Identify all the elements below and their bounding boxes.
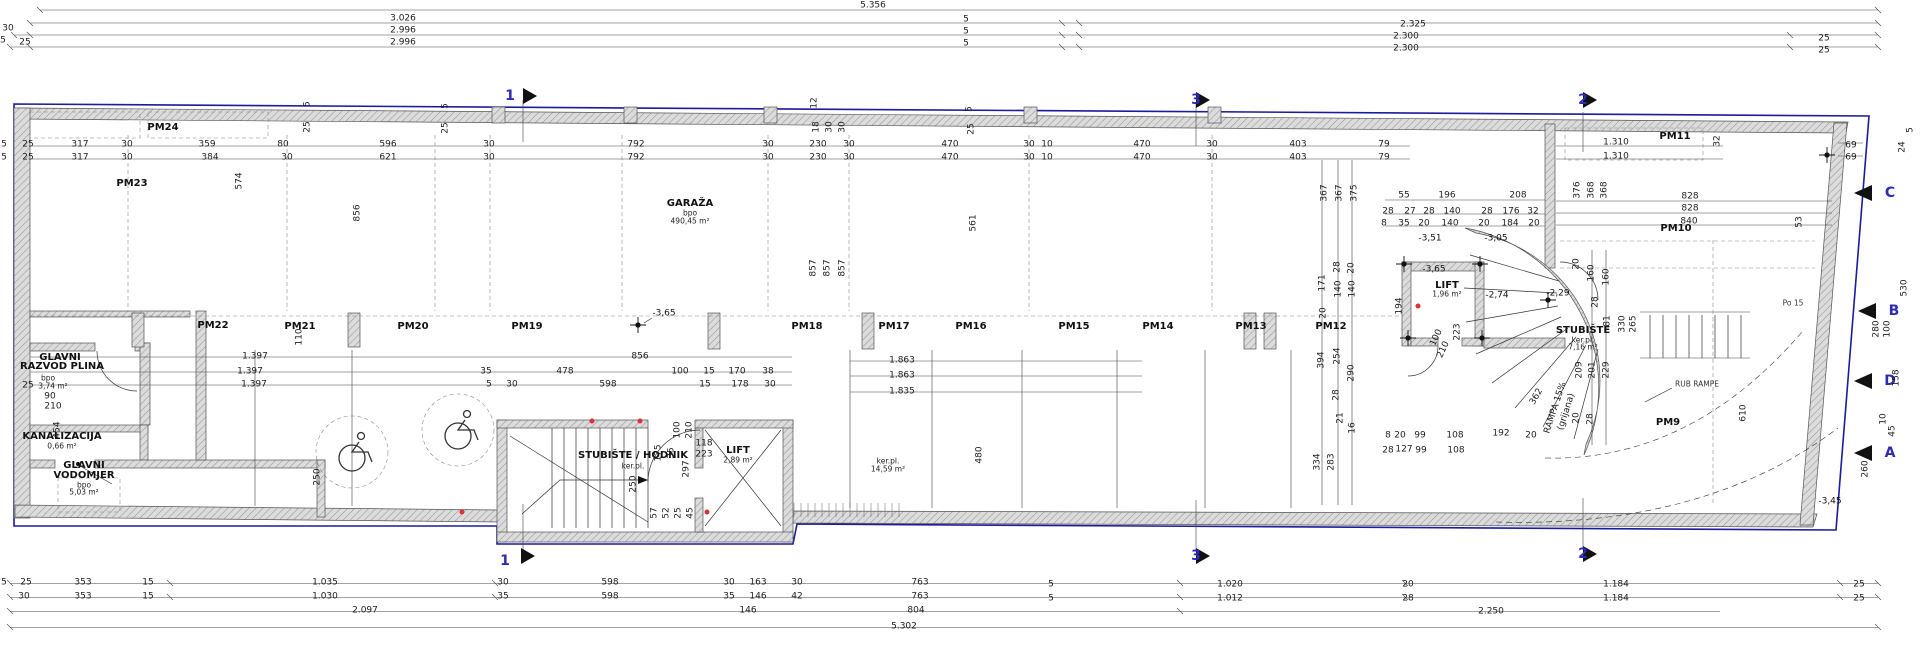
dim-label: 178 xyxy=(731,381,748,390)
dim-label: 20 xyxy=(1528,220,1539,229)
dim-label: 5 xyxy=(966,106,975,112)
section-marker-2-top: 2 xyxy=(1578,93,1588,107)
level-label: -3,65 xyxy=(1422,266,1445,275)
dim-label: 42 xyxy=(791,593,802,602)
dim-label: 163 xyxy=(749,579,766,588)
level-label: -2,74 xyxy=(1485,292,1508,301)
dim-label: 28 xyxy=(1334,261,1343,272)
dim-label: 297 xyxy=(683,460,692,477)
dim-label: 25 xyxy=(20,579,31,588)
dim-label: 30 xyxy=(121,141,132,150)
parking-label-pm10: PM10 xyxy=(1660,224,1691,234)
dim-label: 45 xyxy=(1889,425,1898,436)
dim-label: 25 xyxy=(22,154,33,163)
dim-label: 184 xyxy=(1501,220,1518,229)
dim-label: 3.026 xyxy=(390,15,416,24)
room-area-label: 3,74 m² xyxy=(38,382,67,390)
dim-label: 5.302 xyxy=(891,623,917,632)
dim-label: 10 xyxy=(1041,141,1052,150)
dim-label: 290 xyxy=(1348,364,1357,381)
dim-label: 99 xyxy=(1415,447,1426,456)
parking-label-pm12: PM12 xyxy=(1315,322,1346,332)
dim-label: 2.250 xyxy=(1478,608,1504,617)
dim-label: 8 xyxy=(1381,220,1387,229)
dim-label: 367 xyxy=(1336,184,1345,201)
parking-label-pm20: PM20 xyxy=(397,322,428,332)
dim-label: 828 xyxy=(1681,193,1698,202)
dim-label: 20 xyxy=(1525,432,1536,441)
dim-label: 1.310 xyxy=(1603,153,1629,162)
dim-label: 196 xyxy=(1438,192,1455,201)
dim-label: 5 xyxy=(963,16,969,25)
parking-label-pm9: PM9 xyxy=(1656,418,1680,428)
parking-label-pm23: PM23 xyxy=(116,179,147,189)
dim-label: 223 xyxy=(695,451,712,460)
dim-label: 30 xyxy=(723,579,734,588)
dim-label: 30 xyxy=(18,593,29,602)
dim-label: 194 xyxy=(1396,297,1405,314)
dim-label: 28 xyxy=(1481,208,1492,217)
dim-label: 1.397 xyxy=(241,381,267,390)
dim-label: 25 xyxy=(1853,595,1864,604)
floor-plan-page: 5.3563.02652.325302.99652.300255252.9965… xyxy=(0,0,1920,647)
dim-label: 480 xyxy=(976,446,985,463)
dim-label: 201 xyxy=(1589,361,1598,378)
room-area-label: ker.pl. xyxy=(622,462,645,470)
dim-label: 230 xyxy=(809,154,826,163)
room-area-label: 2,89 m² xyxy=(723,456,752,464)
dim-label: 30 xyxy=(843,141,854,150)
dim-label: 30 xyxy=(1206,141,1217,150)
dim-label: 28 xyxy=(1587,413,1596,424)
dim-label: 1.397 xyxy=(237,368,263,377)
dim-label: 2.325 xyxy=(1400,21,1426,30)
dim-label: 230 xyxy=(809,141,826,150)
parking-label-pm14: PM14 xyxy=(1142,322,1173,332)
parking-label-pm11: PM11 xyxy=(1659,132,1690,142)
dim-label: 2.097 xyxy=(352,607,378,616)
dim-label: 5 xyxy=(1,579,7,588)
dim-label: 15 xyxy=(703,368,714,377)
dim-label: 2.996 xyxy=(390,39,416,48)
dim-label: 30 xyxy=(826,121,835,132)
level-label: -3,65 xyxy=(652,310,675,319)
dim-label: 25 xyxy=(22,382,33,391)
dim-label: 99 xyxy=(1414,432,1425,441)
dim-label: 5 xyxy=(1048,595,1054,604)
dim-label: 28 xyxy=(1423,208,1434,217)
dim-label: 403 xyxy=(1289,141,1306,150)
dim-label: 30 xyxy=(762,141,773,150)
parking-label-pm21: PM21 xyxy=(284,322,315,332)
dim-label: 160 xyxy=(1603,268,1612,285)
level-label: -2,29 xyxy=(1546,290,1569,299)
dim-label: 30 xyxy=(2,25,13,34)
dim-label: 170 xyxy=(728,368,745,377)
dim-label: 1.184 xyxy=(1603,595,1629,604)
dim-label: 90 xyxy=(44,393,55,402)
dim-label: 317 xyxy=(71,154,88,163)
dim-label: 209 xyxy=(1576,361,1585,378)
dim-label: 20 xyxy=(1394,432,1405,441)
dim-label: 30 xyxy=(843,154,854,163)
dim-label: 20 xyxy=(1320,307,1329,318)
dim-label: 25 xyxy=(22,141,33,150)
dim-label: 596 xyxy=(379,141,396,150)
parking-label-pm18: PM18 xyxy=(791,322,822,332)
dim-label: 210 xyxy=(44,403,61,412)
dim-label: 30 xyxy=(497,579,508,588)
dim-label: 25 xyxy=(968,123,977,134)
section-marker-1-bottom: 1 xyxy=(500,554,510,568)
parking-label-pm19: PM19 xyxy=(511,322,542,332)
dim-label: 160 xyxy=(1588,264,1597,281)
ramp-edge-label: RUB RAMPE xyxy=(1675,380,1719,388)
room-area-label: 0,66 m² xyxy=(47,442,76,450)
dim-label: 30 xyxy=(506,381,517,390)
parking-label-pm16: PM16 xyxy=(955,322,986,332)
dim-label: 229 xyxy=(1603,361,1612,378)
dim-label: 10 xyxy=(1041,154,1052,163)
dim-label: 610 xyxy=(1740,404,1749,421)
dim-label: 158 xyxy=(1893,369,1902,386)
dim-label: 353 xyxy=(74,579,91,588)
dim-label: 45 xyxy=(687,507,696,518)
dim-label: 394 xyxy=(1318,351,1327,368)
dim-label: 362 xyxy=(1529,387,1545,406)
room-label: RAZVOD PLINA xyxy=(20,362,104,372)
dim-label: 30 xyxy=(281,154,292,163)
dim-label: 15 xyxy=(142,593,153,602)
dim-label: 470 xyxy=(941,141,958,150)
dim-label: 5 xyxy=(1907,127,1916,133)
dim-label: 5 xyxy=(0,37,6,46)
dim-label: 857 xyxy=(824,259,833,276)
dim-label: 376 xyxy=(1574,181,1583,198)
dim-label: 5 xyxy=(486,381,492,390)
dim-label: 470 xyxy=(1133,154,1150,163)
dim-label: 5 xyxy=(304,101,313,107)
dim-label: 828 xyxy=(1681,205,1698,214)
dim-label: 2.300 xyxy=(1393,33,1419,42)
level-label: -3,45 xyxy=(1818,498,1841,507)
dim-label: 334 xyxy=(1314,453,1323,470)
dim-label: 330 xyxy=(1619,315,1628,332)
dim-label: 1.863 xyxy=(889,357,915,366)
dim-label: 35 xyxy=(480,368,491,377)
dim-label: 5 xyxy=(1,154,7,163)
section-marker-3-bottom: 3 xyxy=(1191,549,1201,563)
section-marker-b: B xyxy=(1889,304,1900,318)
dim-label: 30 xyxy=(483,154,494,163)
dim-label: 5 xyxy=(1048,581,1054,590)
dim-label: 470 xyxy=(1133,141,1150,150)
parking-label-pm15: PM15 xyxy=(1058,322,1089,332)
dim-label: 2.300 xyxy=(1393,45,1419,54)
dim-label: 353 xyxy=(74,593,91,602)
dim-label: 1.012 xyxy=(1217,595,1243,604)
parking-label-pm17: PM17 xyxy=(878,322,909,332)
section-marker-2-bottom: 2 xyxy=(1578,547,1588,561)
dim-label: 375 xyxy=(1351,184,1360,201)
dim-label: 470 xyxy=(941,154,958,163)
dim-label: 598 xyxy=(601,593,618,602)
dim-label: 254 xyxy=(1334,347,1343,364)
dim-label: 38 xyxy=(762,368,773,377)
dim-label: 478 xyxy=(556,368,573,377)
parking-label-pm13: PM13 xyxy=(1235,322,1266,332)
dim-label: 30 xyxy=(791,579,802,588)
dim-label: 28 xyxy=(1333,389,1342,400)
section-marker-a: A xyxy=(1885,446,1896,460)
dim-label: 20 xyxy=(1478,220,1489,229)
dim-label: 530 xyxy=(1901,279,1910,296)
dim-label: 792 xyxy=(627,141,644,150)
dim-label: 30 xyxy=(121,154,132,163)
room-area-label: 7,16 m² xyxy=(1568,343,1597,351)
dim-label: 5 xyxy=(1,141,7,150)
dim-label: 598 xyxy=(599,381,616,390)
dim-label: 79 xyxy=(1378,154,1389,163)
dim-label: 69 xyxy=(1845,154,1856,163)
dim-label: 5 xyxy=(442,103,451,109)
dim-label: 108 xyxy=(1447,447,1464,456)
dim-label: 28 xyxy=(1382,208,1393,217)
dim-label: 250 xyxy=(630,475,639,492)
dim-label: 1.835 xyxy=(889,388,915,397)
dim-label: 8 xyxy=(1385,432,1391,441)
dim-label: 108 xyxy=(1446,432,1463,441)
dim-label: 171 xyxy=(1319,274,1328,291)
dim-label: 763 xyxy=(911,593,928,602)
dim-label: 1.184 xyxy=(1603,581,1629,590)
dim-label: 574 xyxy=(236,172,245,189)
dim-label: 5 xyxy=(963,28,969,37)
dim-label: 25 xyxy=(442,122,451,133)
dim-label: 283 xyxy=(1328,453,1337,470)
room-area-label: 1,96 m² xyxy=(1432,290,1461,298)
dim-label: 27 xyxy=(1404,208,1415,217)
dim-label: 15 xyxy=(142,579,153,588)
dim-label: 5 xyxy=(963,40,969,49)
dim-label: 30 xyxy=(1023,141,1034,150)
dim-label: 280 xyxy=(1873,320,1882,337)
dim-label: 804 xyxy=(907,607,924,616)
dim-label: 359 xyxy=(198,141,215,150)
dim-label: 140 xyxy=(1441,220,1458,229)
level-label: -3,51 xyxy=(1418,235,1441,244)
dim-label: 79 xyxy=(1378,141,1389,150)
section-marker-1-top: 1 xyxy=(505,89,515,103)
level-label: -3,05 xyxy=(1484,235,1507,244)
dim-label: 16 xyxy=(1349,422,1358,433)
dim-label: 55 xyxy=(1398,192,1409,201)
dim-label: 100 xyxy=(1884,320,1893,337)
dim-label: 21 xyxy=(1337,412,1346,423)
dim-label: 1.863 xyxy=(889,372,915,381)
dim-label: 1.030 xyxy=(312,593,338,602)
dim-label: 28 xyxy=(1402,595,1413,604)
dim-label: 857 xyxy=(839,259,848,276)
dim-label: 35 xyxy=(1398,220,1409,229)
dim-label: 20 xyxy=(1573,258,1582,269)
dim-label: 403 xyxy=(1289,154,1306,163)
dim-label: 20 xyxy=(1402,581,1413,590)
dim-label: 856 xyxy=(631,353,648,362)
room-area-label: 14,59 m² xyxy=(871,465,905,473)
dim-label: 25 xyxy=(675,507,684,518)
dim-label: 30 xyxy=(1023,154,1034,163)
dim-label: 18 xyxy=(813,121,822,132)
dim-label: 30 xyxy=(762,154,773,163)
dim-label: 598 xyxy=(601,579,618,588)
dim-label: 32 xyxy=(1527,208,1538,217)
section-marker-3-top: 3 xyxy=(1191,93,1201,107)
dim-label: 25 xyxy=(1818,35,1829,44)
dim-label: 856 xyxy=(354,204,363,221)
dim-label: 35 xyxy=(497,593,508,602)
dim-label: 30 xyxy=(483,141,494,150)
dim-label: 140 xyxy=(1349,280,1358,297)
dim-label: 140 xyxy=(1335,280,1344,297)
dim-label: 250 xyxy=(314,468,323,485)
dim-label: 1.035 xyxy=(312,579,338,588)
parking-label-pm24: PM24 xyxy=(147,123,178,133)
room-area-label: 490,45 m² xyxy=(671,217,710,225)
dim-label: 792 xyxy=(627,154,644,163)
dim-label: 25 xyxy=(304,121,313,132)
dim-label: 100 xyxy=(674,421,683,438)
dim-label: 30 xyxy=(839,121,848,132)
dim-label: 367 xyxy=(1321,184,1330,201)
dim-label: 30 xyxy=(764,381,775,390)
dim-label: 621 xyxy=(379,154,396,163)
dim-label: 210 xyxy=(686,421,695,438)
dim-label: 208 xyxy=(1509,192,1526,201)
annotation-label: Po 15 xyxy=(1783,299,1804,307)
dim-label: 1.310 xyxy=(1603,139,1629,148)
dim-label: 25 xyxy=(19,39,30,48)
dim-label: 28 xyxy=(1592,296,1601,307)
dim-label: 317 xyxy=(71,141,88,150)
dim-label: 24 xyxy=(1899,141,1908,152)
dim-label: 1.397 xyxy=(242,353,268,362)
dim-label: 1.020 xyxy=(1217,581,1243,590)
dim-label: 12 xyxy=(811,97,820,108)
dim-label: 20 xyxy=(1418,220,1429,229)
parking-label-pm22: PM22 xyxy=(197,321,228,331)
dim-label: 140 xyxy=(1443,208,1460,217)
dim-label: 146 xyxy=(749,593,766,602)
dim-label: 53 xyxy=(1796,216,1805,227)
dim-label: 857 xyxy=(810,259,819,276)
dim-label: 265 xyxy=(1630,315,1639,332)
dim-label: 10 xyxy=(1880,413,1889,424)
label-layer: 5.3563.02652.325302.99652.300255252.9965… xyxy=(0,0,1920,647)
room-area-label: 5,03 m² xyxy=(69,488,98,496)
dim-label: 80 xyxy=(277,141,288,150)
room-label-stubiste-hodnik: STUBIŠTE / HODNIK xyxy=(578,451,688,461)
dim-label: 25 xyxy=(1818,47,1829,56)
dim-label: 384 xyxy=(201,154,218,163)
dim-label: 5.356 xyxy=(860,2,886,11)
dim-label: 30 xyxy=(1206,154,1217,163)
dim-label: 52 xyxy=(663,507,672,518)
dim-label: 192 xyxy=(1492,430,1509,439)
dim-label: 57 xyxy=(651,507,660,518)
dim-label: 127 xyxy=(1395,446,1412,455)
dim-label: 35 xyxy=(723,593,734,602)
dim-label: 15 xyxy=(699,381,710,390)
dim-label: 28 xyxy=(1382,447,1393,456)
dim-label: 763 xyxy=(911,579,928,588)
dim-label: 25 xyxy=(1853,581,1864,590)
dim-label: 260 xyxy=(1862,460,1871,477)
dim-label: 561 xyxy=(970,214,979,231)
dim-label: 368 xyxy=(1601,181,1610,198)
dim-label: 20 xyxy=(1573,412,1582,423)
dim-label: 146 xyxy=(739,607,756,616)
dim-label: 118 xyxy=(695,440,712,449)
dim-label: 32 xyxy=(1714,135,1723,146)
dim-label: 368 xyxy=(1588,181,1597,198)
dim-label: 100 xyxy=(671,368,688,377)
dim-label: 176 xyxy=(1502,208,1519,217)
dim-label: 20 xyxy=(1348,262,1357,273)
section-marker-c: C xyxy=(1885,186,1895,200)
dim-label: 69 xyxy=(1845,142,1856,151)
dim-label: 2.996 xyxy=(390,27,416,36)
dim-label: 223 xyxy=(1454,323,1463,340)
